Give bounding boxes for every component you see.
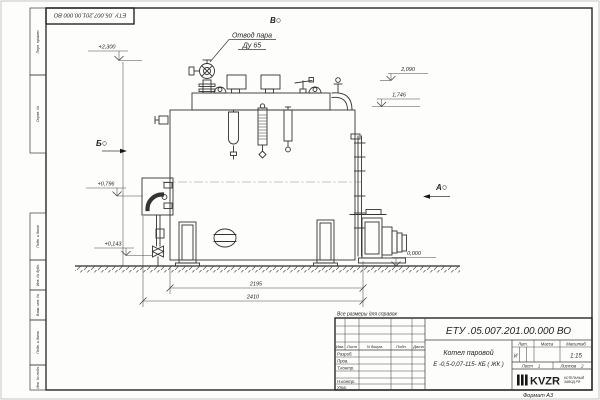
view-letter: Б (96, 139, 102, 148)
margin-stamp-label: Инв. № подл. (36, 366, 40, 388)
dimension-value: 2195 (249, 282, 263, 288)
dimension-value: 2410 (246, 295, 260, 301)
elevation-value: 1,746 (392, 93, 407, 99)
margin-stamp-label: Справ. № (36, 106, 40, 122)
sheet-frame (1, 1, 599, 399)
row-label: Утв. (337, 385, 347, 390)
elevation-value: +0,796 (98, 182, 116, 188)
margin-stamp-label: Взам. инв. № (36, 294, 40, 316)
margin-stamp-label: Перв. примен. (36, 30, 40, 54)
product-type: Е -0,5-0,07-115- КБ ( ЖК ) (433, 362, 503, 368)
company-name: КОТЕЛЬНЫЙ (564, 376, 585, 380)
callout-text: Ду 65 (242, 43, 261, 50)
mass-header: Масса (541, 341, 554, 346)
column-header: N докум. (367, 344, 383, 349)
scale-header: Масштаб (566, 341, 586, 346)
sheet-number: Лист1 (521, 363, 541, 368)
drawing-sheet: ЕТУ .05.007.201.00.000 ВО Перв. примен. … (0, 0, 600, 400)
column-header: Дата (412, 344, 424, 349)
corner-designation: ЕТУ .05.007.201.00.000 ВО (53, 12, 126, 18)
drawing-canvas: ЕТУ .05.007.201.00.000 ВО Перв. примен. … (0, 0, 600, 400)
row-label: Т.контр. (337, 366, 354, 371)
margin-stamp-label: Подп. и дата (36, 225, 40, 248)
view-letter: А (435, 183, 442, 192)
elevation-value: +0,143 (105, 242, 123, 248)
elevation-value: +2,300 (99, 45, 117, 51)
callout-text: Отвод пара (232, 32, 272, 40)
column-header: Изм. (336, 344, 345, 349)
column-header: Лист (346, 344, 358, 349)
row-label: Разраб. (337, 352, 353, 357)
sheets-total: Листов2 (559, 363, 584, 368)
column-header: Подп. (396, 344, 407, 349)
elevation-value: 0,000 (407, 251, 422, 257)
product-name: Котел паровой (443, 349, 493, 357)
lit-header: Лит. (517, 341, 528, 346)
lit-value: И (514, 354, 518, 360)
margin-stamp-label: Подп. и дата (36, 331, 40, 354)
company-name: ЗАВОД РФ (564, 380, 581, 384)
view-letter: В (270, 16, 276, 25)
margin-stamp-label: Инв. № дубл. (36, 264, 40, 286)
format-label: Формат А3 (523, 393, 554, 399)
elevation-value: 2,090 (400, 67, 416, 73)
scale-value: 1:15 (570, 354, 582, 360)
row-label: Пров. (337, 359, 348, 364)
ground-line (75, 266, 460, 272)
reference-note: Все размеры для справок (337, 312, 398, 318)
company-logo-text: KVZR (530, 376, 560, 388)
drawing-number: ЕТУ .05.007.201.00.000 ВО (446, 326, 571, 337)
row-label: Н.контр. (337, 379, 355, 384)
